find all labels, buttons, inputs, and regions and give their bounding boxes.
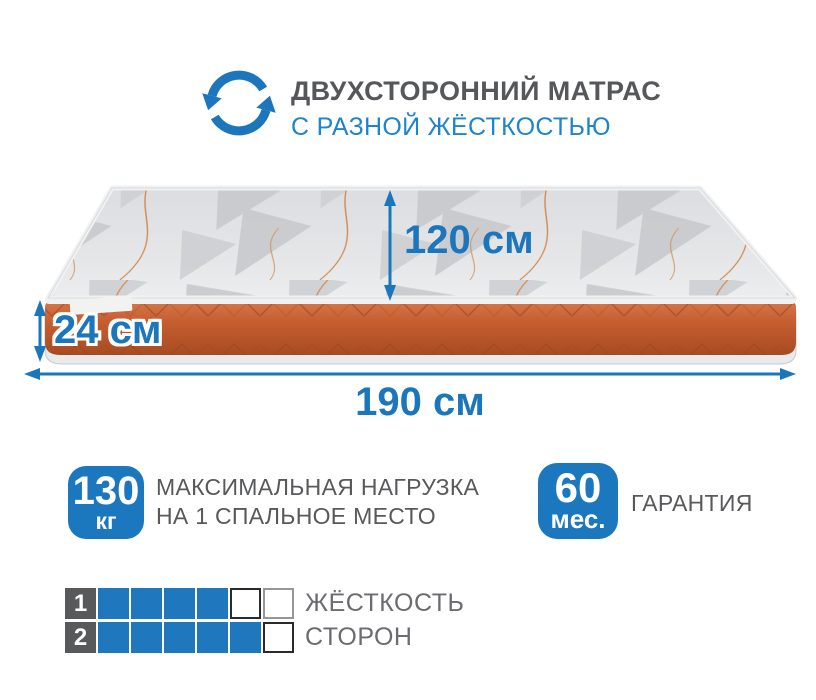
scale-cell-filled [164,588,195,619]
depth-dimension-label: 120 см [404,218,534,263]
mattress-illustration [0,168,816,403]
firmness-row-side1: 1 ЖЁСТКОСТЬ [65,588,464,619]
firmness-label: ЖЁСТКОСТЬ [305,589,464,618]
max-load-caption-line2: НА 1 СПАЛЬНОЕ МЕСТО [156,502,479,531]
scale-cell-filled [98,622,129,653]
scale-cell-filled [131,622,162,653]
side2-cells [98,622,296,653]
scale-cell-filled [98,588,129,619]
sides-label: СТОРОН [305,623,412,652]
max-load-unit: кг [95,509,116,533]
side2-number: 2 [65,622,96,653]
scale-cell-filled [197,588,228,619]
max-load-badge: 130 кг [68,466,144,539]
mattress-infographic: ДВУХСТОРОННИЙ МАТРАС С РАЗНОЙ ЖЁСТКОСТЬЮ [0,0,816,700]
firmness-row-side2: 2 СТОРОН [65,622,464,653]
scale-cell-filled [230,622,261,653]
height-arrow [34,300,46,362]
page-subtitle: С РАЗНОЙ ЖЁСТКОСТЬЮ [291,113,661,142]
scale-cell-filled [164,622,195,653]
page-title: ДВУХСТОРОННИЙ МАТРАС [291,76,661,107]
max-load-caption: МАКСИМАЛЬНАЯ НАГРУЗКА НА 1 СПАЛЬНОЕ МЕСТ… [156,473,479,531]
scale-cell-empty-dark [263,622,294,653]
height-dimension-label: 24 см [54,308,161,353]
scale-cell-filled [197,622,228,653]
firmness-scale: 1 ЖЁСТКОСТЬ 2 СТОРОН [65,588,464,656]
flip-rotate-arrows-icon [194,58,284,148]
warranty-caption: ГАРАНТИЯ [631,489,753,518]
scale-cell-empty-light [263,588,294,619]
header: ДВУХСТОРОННИЙ МАТРАС С РАЗНОЙ ЖЁСТКОСТЬЮ [291,76,661,142]
warranty-unit: мес. [550,506,605,533]
warranty-badge: 60 мес. [538,463,618,539]
max-load-caption-line1: МАКСИМАЛЬНАЯ НАГРУЗКА [156,473,479,502]
side1-number: 1 [65,588,96,619]
scale-cell-filled [131,588,162,619]
warranty-value: 60 [555,470,602,506]
width-arrow [24,368,796,380]
width-dimension-label: 190 см [280,380,560,425]
max-load-value: 130 [73,473,140,509]
scale-cell-empty-dark [230,588,261,619]
side1-cells [98,588,296,619]
